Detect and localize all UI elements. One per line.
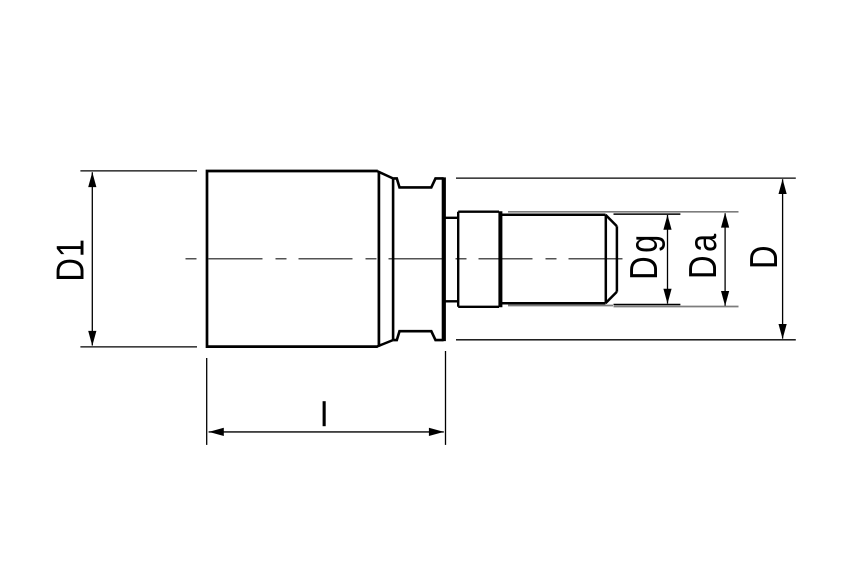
svg-text:Dg: Dg xyxy=(623,231,666,280)
svg-text:Da: Da xyxy=(682,230,725,279)
svg-text:D: D xyxy=(742,245,785,269)
svg-text:D1: D1 xyxy=(49,238,92,282)
